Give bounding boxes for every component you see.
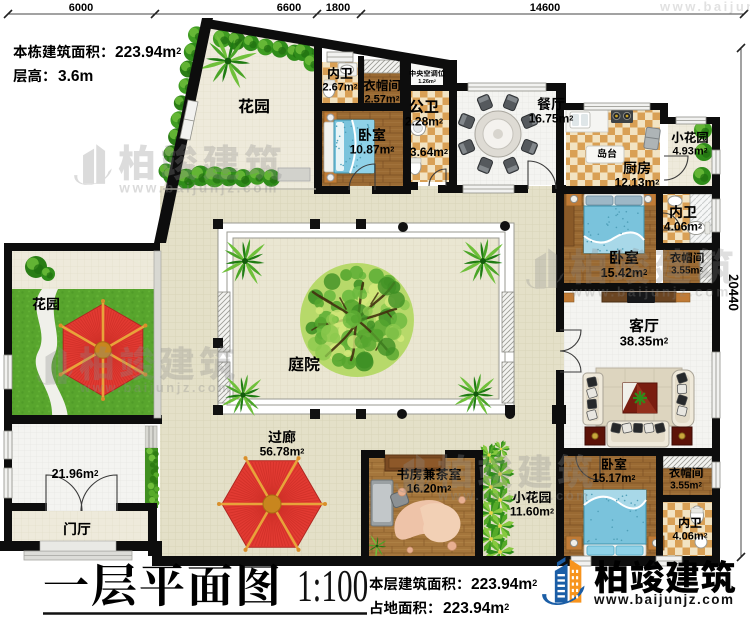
svg-text:4.93m2: 4.93m2	[673, 146, 708, 158]
svg-text:11.60m2: 11.60m2	[510, 505, 554, 519]
svg-text:3.55m2: 3.55m2	[670, 481, 702, 492]
svg-text:3.6m: 3.6m	[58, 68, 93, 85]
svg-text:www.baijunjz.com: www.baijunjz.com	[593, 592, 735, 607]
svg-text:www.baijunjz.com: www.baijunjz.com	[118, 180, 279, 195]
svg-text:15.17m2: 15.17m2	[593, 473, 636, 485]
svg-text:6000: 6000	[69, 2, 93, 14]
svg-text:4.06m2: 4.06m2	[673, 531, 708, 543]
svg-text:14600: 14600	[530, 2, 561, 14]
svg-text:2.67m2: 2.67m2	[323, 82, 358, 94]
svg-text:56.78m2: 56.78m2	[260, 445, 305, 459]
svg-text:1.26m2: 1.26m2	[418, 79, 436, 85]
svg-text:16.75m2: 16.75m2	[529, 112, 574, 126]
svg-text:www.baijunjz.com: www.baijunjz.com	[570, 284, 731, 299]
svg-text:2.28m2: 2.28m2	[405, 115, 443, 129]
svg-text:1:100: 1:100	[297, 560, 368, 611]
svg-text:6600: 6600	[277, 2, 301, 14]
svg-text:10.87m2: 10.87m2	[350, 143, 395, 157]
svg-text:223.94m2: 223.94m2	[471, 576, 537, 593]
svg-text:www.baijunjz.com: www.baijunjz.com	[659, 0, 750, 14]
svg-text:38.35m2: 38.35m2	[620, 334, 669, 349]
svg-text:3.64m2: 3.64m2	[410, 145, 448, 159]
svg-text:www.baijunjz.com: www.baijunjz.com	[437, 488, 590, 503]
svg-text:223.94m2: 223.94m2	[115, 44, 181, 61]
svg-text:1800: 1800	[326, 2, 350, 14]
svg-text:2.57m2: 2.57m2	[365, 94, 400, 106]
svg-text:12.13m2: 12.13m2	[615, 176, 660, 190]
svg-text:223.94m2: 223.94m2	[443, 600, 509, 617]
svg-text:www.baijunjz.com: www.baijunjz.com	[79, 380, 232, 395]
svg-text:4.06m2: 4.06m2	[664, 220, 702, 234]
svg-text:21.96m2: 21.96m2	[52, 467, 99, 481]
